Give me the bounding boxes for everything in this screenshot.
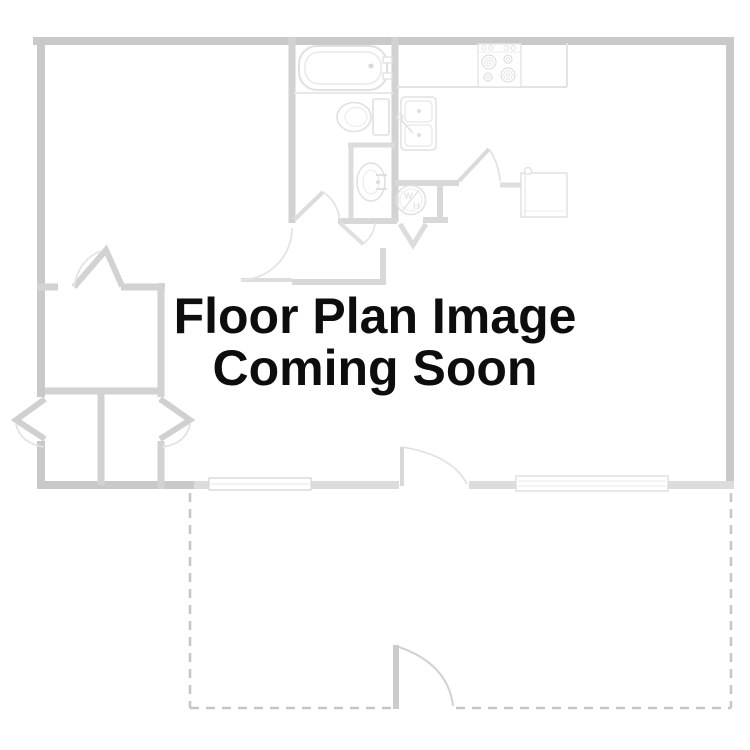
pedestal-sink — [357, 163, 387, 201]
bathtub — [294, 46, 393, 93]
patio-gate-door — [396, 645, 453, 709]
patio-outline — [190, 493, 731, 708]
washer-heater-circle: W H — [397, 186, 426, 215]
patio-door-opening — [399, 478, 469, 492]
toilet — [337, 99, 389, 135]
floor-plan-placeholder: W H Flo — [0, 0, 750, 750]
window-right — [516, 476, 668, 491]
svg-text:H: H — [413, 201, 420, 211]
kitchen-sink — [397, 97, 436, 150]
caption-line2: Coming Soon — [0, 342, 750, 394]
svg-text:W: W — [404, 191, 413, 201]
stove — [478, 44, 521, 87]
window-left — [209, 478, 311, 490]
caption-line1: Floor Plan Image — [0, 290, 750, 342]
refrigerator — [521, 168, 567, 218]
coming-soon-caption: Floor Plan Image Coming Soon — [0, 290, 750, 394]
